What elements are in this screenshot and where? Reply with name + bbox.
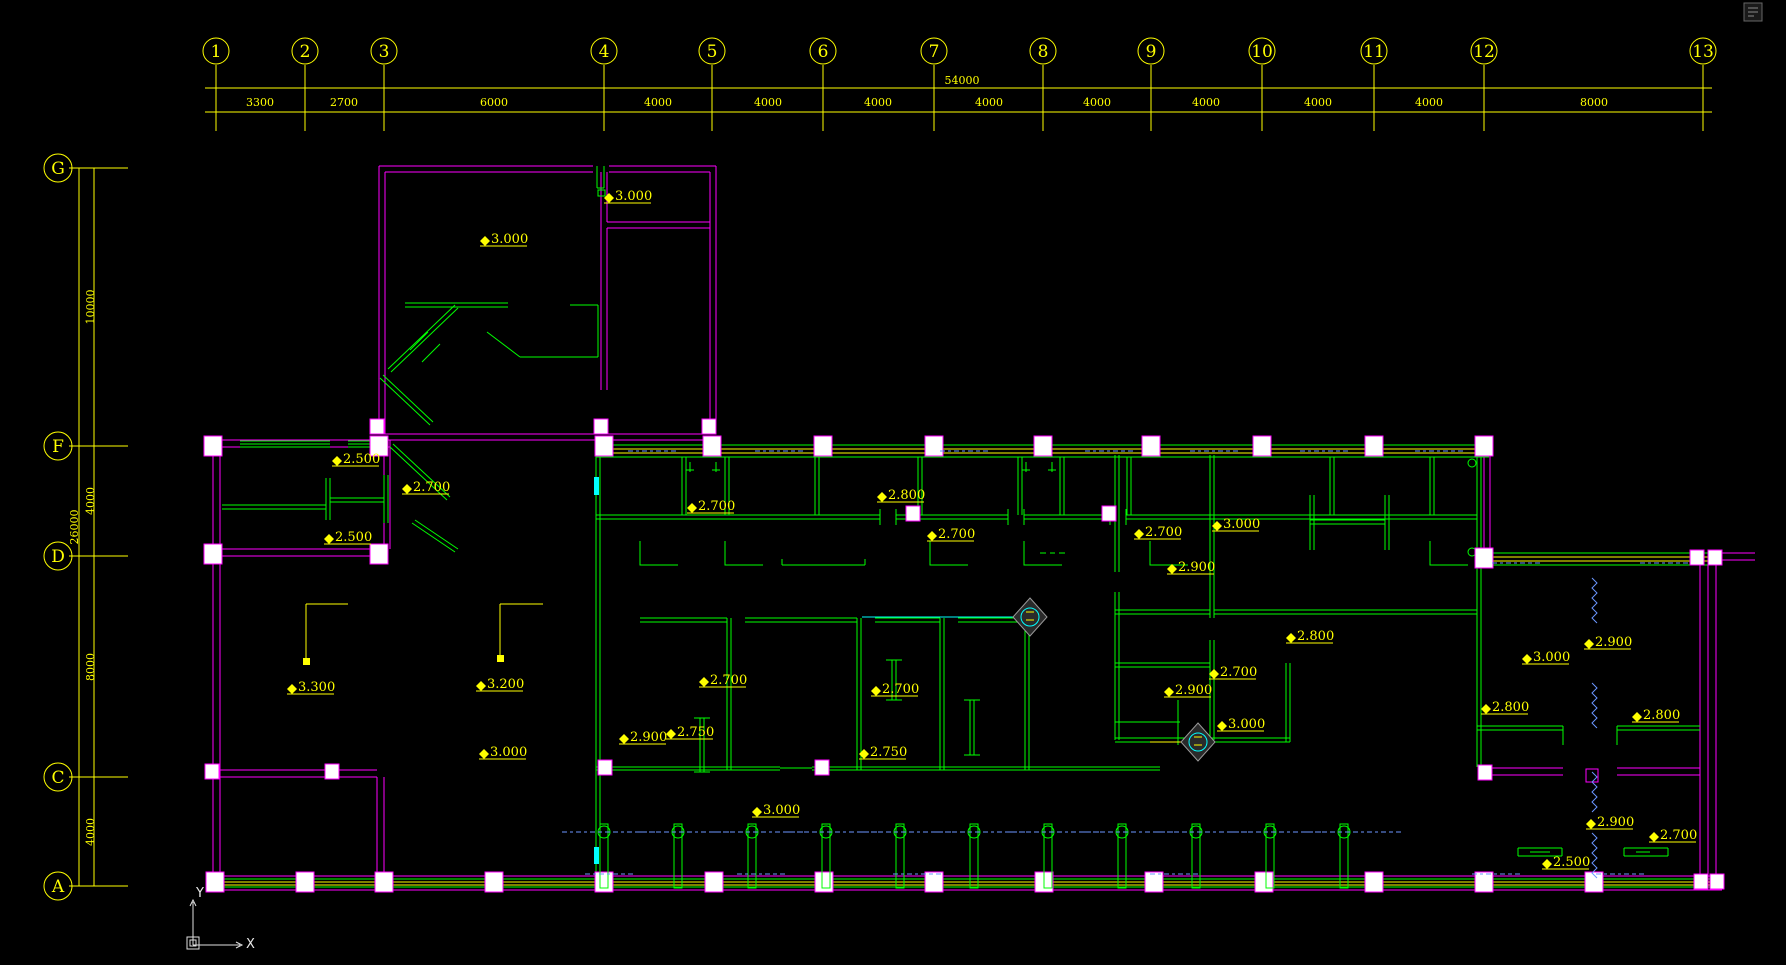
grid-col-label: 10 xyxy=(1251,42,1273,62)
svg-text:3.000: 3.000 xyxy=(1228,717,1265,732)
grid-col-label: 1 xyxy=(211,42,222,62)
grid-bubble: 6 xyxy=(810,38,836,64)
grid-bubble: 7 xyxy=(921,38,947,64)
elevation-label: 2.700 xyxy=(687,499,735,514)
grid-col-label: 3 xyxy=(379,42,390,62)
svg-text:3.000: 3.000 xyxy=(763,803,800,818)
dim-label: 8000 xyxy=(84,653,97,681)
grid-bubble: 8 xyxy=(1030,38,1056,64)
dim-label: 4000 xyxy=(84,818,97,846)
grid-bubble: 10 xyxy=(1249,38,1275,64)
grid-row-label: D xyxy=(51,547,65,567)
column-grid-bubbles: 1 2 3 4 5 6 7 8 9 10 11 12 13 xyxy=(203,38,1716,64)
grid-bubble: 1 xyxy=(203,38,229,64)
window-bands-yellow xyxy=(213,449,1722,885)
dim-label: 4000 xyxy=(84,487,97,515)
elevation-label: 2.700 xyxy=(871,682,919,697)
svg-text:2.500: 2.500 xyxy=(343,452,380,467)
dim-label: 4000 xyxy=(754,96,782,109)
ucs-icon: Y X xyxy=(187,886,255,952)
elevation-label: 2.900 xyxy=(1584,635,1632,650)
grid-row-label: F xyxy=(52,437,64,457)
svg-text:3.000: 3.000 xyxy=(615,189,652,204)
window-mullion-row xyxy=(562,824,1401,888)
detail-callout-marker xyxy=(1013,598,1047,636)
grid-bubble: C xyxy=(44,763,72,791)
elevation-label: 3.000 xyxy=(752,803,800,818)
grid-col-label: 2 xyxy=(300,42,311,62)
hydrant-marker xyxy=(594,477,599,495)
ucs-x-label: X xyxy=(246,937,255,952)
elevation-label: 2.700 xyxy=(1209,665,1257,680)
elevation-label: 2.500 xyxy=(332,452,380,467)
elevation-label: 3.000 xyxy=(480,232,528,247)
svg-text:2.750: 2.750 xyxy=(677,725,714,740)
cad-drawing-canvas[interactable]: 1 2 3 4 5 6 7 8 9 10 11 12 13 G F D C A … xyxy=(0,0,1786,965)
elevation-label: 2.700 xyxy=(699,673,747,688)
grid-col-label: 9 xyxy=(1146,42,1157,62)
svg-text:2.900: 2.900 xyxy=(1595,635,1632,650)
grid-bubble: 12 xyxy=(1471,38,1497,64)
dim-label: 3300 xyxy=(246,96,274,109)
hydrant-marker xyxy=(594,847,599,864)
dim-label: 6000 xyxy=(480,96,508,109)
elevation-label: 2.750 xyxy=(859,745,907,760)
elevation-label: 2.500 xyxy=(324,530,372,545)
horizontal-dimensions: 3300 2700 6000 4000 4000 4000 4000 4000 … xyxy=(246,74,1608,109)
walls-magenta xyxy=(213,166,1755,890)
grid-row-label: G xyxy=(51,159,65,179)
grid-col-label: 7 xyxy=(929,42,940,62)
svg-text:2.700: 2.700 xyxy=(698,499,735,514)
grid-bubble: G xyxy=(44,154,72,182)
svg-text:2.700: 2.700 xyxy=(1660,828,1697,843)
grid-col-label: 6 xyxy=(818,42,829,62)
elevation-label: 2.800 xyxy=(877,488,925,503)
grid-col-label: 12 xyxy=(1473,42,1495,62)
grid-col-label: 13 xyxy=(1692,42,1714,62)
elevation-label: 2.700 xyxy=(927,527,975,542)
elevation-label: 3.300 xyxy=(287,680,335,695)
fixture-circle xyxy=(1468,459,1476,467)
insulation-zigzags xyxy=(1592,578,1597,878)
elevation-label: 2.900 xyxy=(619,730,667,745)
grid-bubble: 4 xyxy=(591,38,617,64)
elevation-label: 2.900 xyxy=(1167,560,1215,575)
ucs-y-label: Y xyxy=(195,886,204,901)
dim-label: 4000 xyxy=(1083,96,1111,109)
elevation-label: 2.800 xyxy=(1481,700,1529,715)
elevation-label: 2.700 xyxy=(1649,828,1697,843)
dim-label: 4000 xyxy=(644,96,672,109)
grid-bubble: 9 xyxy=(1138,38,1164,64)
elevation-label: 2.900 xyxy=(1586,815,1634,830)
grid-col-label: 5 xyxy=(707,42,718,62)
grid-bubble: 2 xyxy=(292,38,318,64)
elevation-label: 2.800 xyxy=(1286,629,1334,644)
elevation-label: 2.800 xyxy=(1632,708,1680,723)
dim-label: 4000 xyxy=(864,96,892,109)
survey-point xyxy=(497,655,504,662)
dim-label: 4000 xyxy=(1304,96,1332,109)
svg-text:2.700: 2.700 xyxy=(710,673,747,688)
elevation-label: 3.000 xyxy=(604,189,652,204)
vertical-dimensions: 10000 4000 8000 4000 26000 xyxy=(68,290,97,847)
svg-text:2.500: 2.500 xyxy=(1553,855,1590,870)
grid-bubble: A xyxy=(44,872,72,900)
dim-label: 2700 xyxy=(330,96,358,109)
grid-bubble: 11 xyxy=(1361,38,1387,64)
dim-label: 8000 xyxy=(1580,96,1608,109)
elevation-label: 3.200 xyxy=(476,677,524,692)
svg-text:2.700: 2.700 xyxy=(882,682,919,697)
elevation-label: 2.750 xyxy=(666,725,714,740)
elevation-label: 2.500 xyxy=(1542,855,1590,870)
grid-col-label: 11 xyxy=(1363,42,1385,62)
grid-row-label: C xyxy=(51,768,64,788)
grid-bubble: D xyxy=(44,542,72,570)
elevation-label: 2.700 xyxy=(402,480,450,495)
svg-text:2.700: 2.700 xyxy=(1220,665,1257,680)
svg-text:2.800: 2.800 xyxy=(1643,708,1680,723)
svg-text:3.000: 3.000 xyxy=(491,232,528,247)
svg-text:2.700: 2.700 xyxy=(413,480,450,495)
grid-row-label: A xyxy=(51,877,65,897)
svg-text:3.000: 3.000 xyxy=(1533,650,1570,665)
svg-text:2.800: 2.800 xyxy=(1297,629,1334,644)
grid-bubble: F xyxy=(44,432,72,460)
svg-text:2.750: 2.750 xyxy=(870,745,907,760)
elevation-label: 2.900 xyxy=(1164,683,1212,698)
grid-col-label: 4 xyxy=(599,42,610,62)
grid-bubble: 3 xyxy=(371,38,397,64)
svg-text:3.000: 3.000 xyxy=(1223,517,1260,532)
floor-plan-drawing: 1 2 3 4 5 6 7 8 9 10 11 12 13 G F D C A … xyxy=(0,0,1786,965)
svg-text:2.900: 2.900 xyxy=(1175,683,1212,698)
total-height-dim: 26000 xyxy=(68,510,81,545)
elevation-label: 3.000 xyxy=(479,745,527,760)
svg-text:2.800: 2.800 xyxy=(888,488,925,503)
svg-text:2.900: 2.900 xyxy=(630,730,667,745)
svg-text:2.800: 2.800 xyxy=(1492,700,1529,715)
grid-bubble: 5 xyxy=(699,38,725,64)
elevation-label: 2.700 xyxy=(1134,525,1182,540)
viewport-corner-icon[interactable] xyxy=(1744,3,1762,21)
svg-text:2.900: 2.900 xyxy=(1178,560,1215,575)
svg-text:3.300: 3.300 xyxy=(298,680,335,695)
total-width-dim: 54000 xyxy=(945,74,980,87)
svg-text:3.200: 3.200 xyxy=(487,677,524,692)
dim-label: 10000 xyxy=(84,290,97,325)
survey-point xyxy=(303,658,310,665)
svg-text:2.700: 2.700 xyxy=(1145,525,1182,540)
grid-col-label: 8 xyxy=(1038,42,1049,62)
svg-text:2.900: 2.900 xyxy=(1597,815,1634,830)
elevation-label: 3.000 xyxy=(1522,650,1570,665)
grid-bubble: 13 xyxy=(1690,38,1716,64)
dim-label: 4000 xyxy=(1415,96,1443,109)
elevation-label: 3.000 xyxy=(1217,717,1265,732)
svg-text:2.500: 2.500 xyxy=(335,530,372,545)
dim-label: 4000 xyxy=(1192,96,1220,109)
dim-label: 4000 xyxy=(975,96,1003,109)
svg-text:3.000: 3.000 xyxy=(490,745,527,760)
svg-text:2.700: 2.700 xyxy=(938,527,975,542)
